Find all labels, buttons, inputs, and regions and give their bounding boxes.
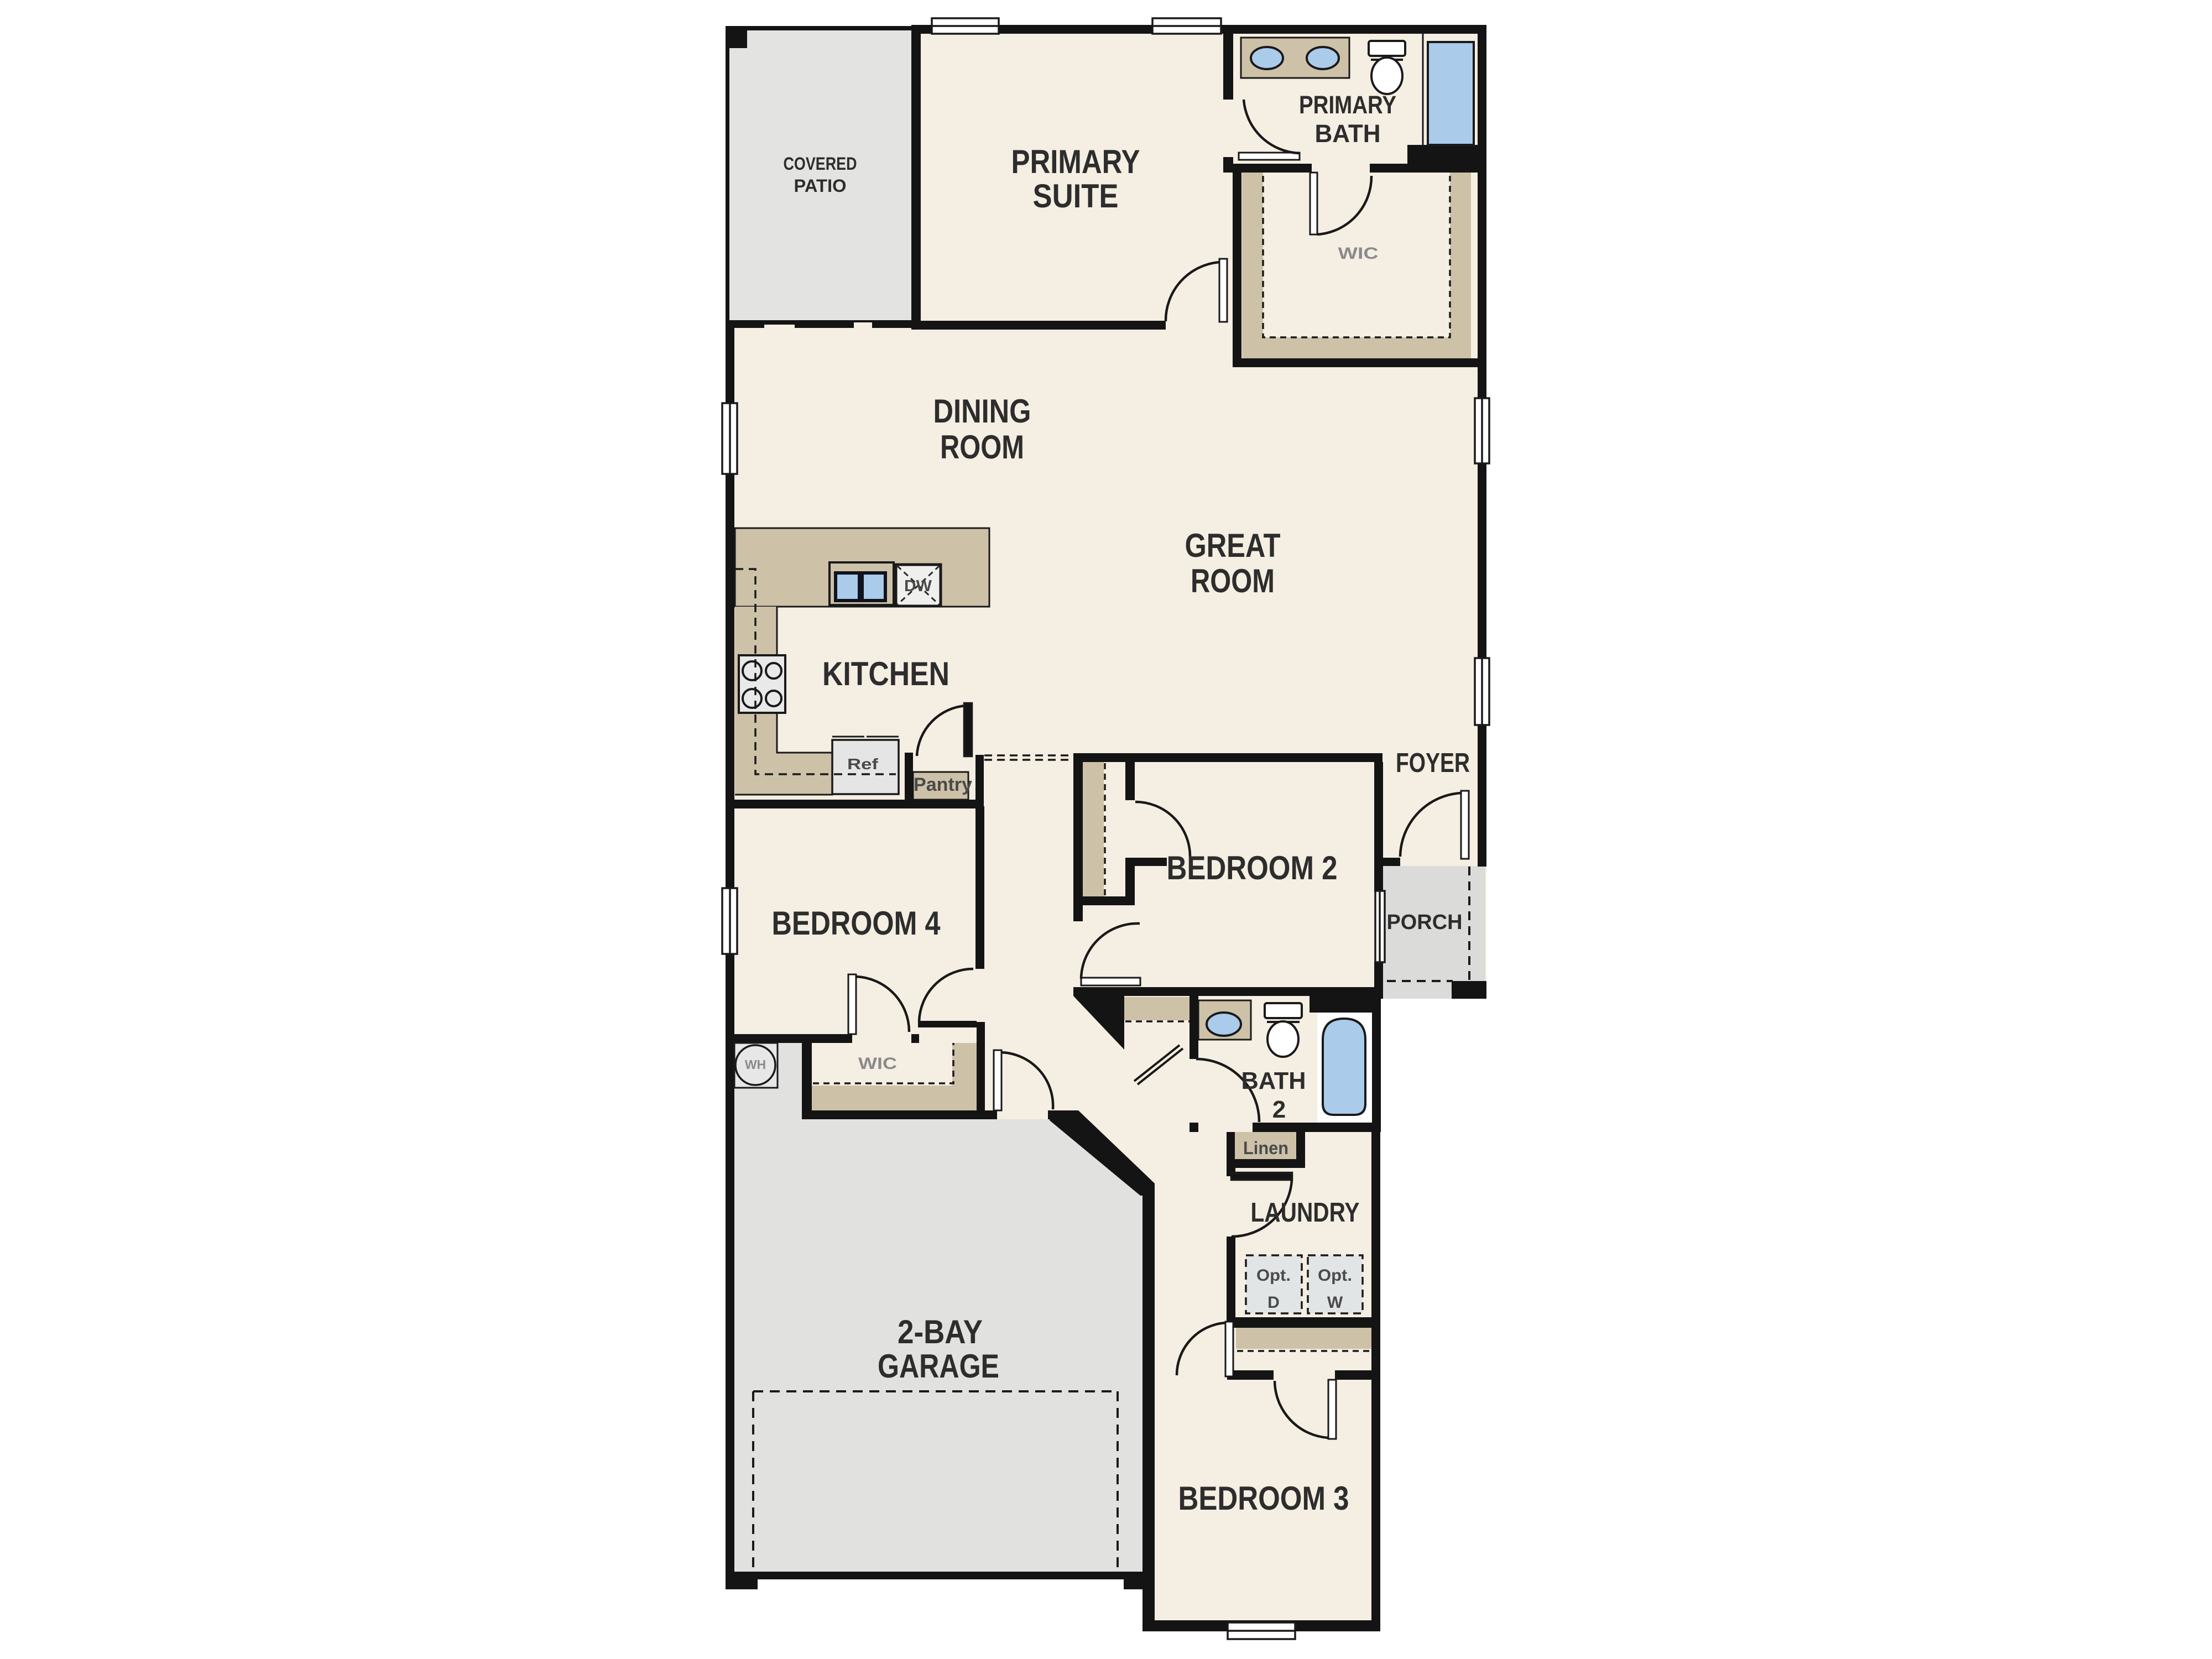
svg-text:BEDROOM 3: BEDROOM 3 <box>1178 1480 1349 1517</box>
svg-text:GREAT: GREAT <box>1185 527 1281 564</box>
svg-text:Opt.: Opt. <box>1256 1266 1291 1285</box>
svg-text:PRIMARY: PRIMARY <box>1011 143 1140 180</box>
svg-text:LAUNDRY: LAUNDRY <box>1251 1198 1360 1228</box>
svg-text:WIC: WIC <box>1338 244 1379 263</box>
svg-text:WIC: WIC <box>858 1055 897 1073</box>
svg-text:BATH: BATH <box>1241 1067 1306 1094</box>
svg-text:D: D <box>1267 1293 1280 1312</box>
svg-text:PRIMARY: PRIMARY <box>1299 91 1396 119</box>
svg-text:PORCH: PORCH <box>1387 911 1463 934</box>
svg-text:BEDROOM 4: BEDROOM 4 <box>772 905 941 942</box>
svg-text:FOYER: FOYER <box>1396 748 1470 778</box>
svg-text:KITCHEN: KITCHEN <box>822 655 950 692</box>
svg-text:DW: DW <box>904 577 932 595</box>
svg-text:Ref: Ref <box>847 755 879 773</box>
svg-text:WH: WH <box>745 1057 766 1072</box>
svg-text:GARAGE: GARAGE <box>878 1348 999 1385</box>
svg-text:COVERED: COVERED <box>784 154 857 174</box>
svg-text:BATH: BATH <box>1315 119 1381 148</box>
svg-text:W: W <box>1327 1293 1343 1312</box>
svg-text:Opt.: Opt. <box>1318 1266 1352 1285</box>
svg-text:ROOM: ROOM <box>1191 562 1275 599</box>
svg-text:PATIO: PATIO <box>794 176 847 196</box>
svg-text:Pantry: Pantry <box>914 774 972 795</box>
svg-text:Linen: Linen <box>1243 1138 1288 1158</box>
svg-text:2-BAY: 2-BAY <box>898 1313 983 1350</box>
svg-text:2: 2 <box>1272 1096 1286 1123</box>
svg-text:SUITE: SUITE <box>1033 178 1119 215</box>
svg-text:BEDROOM 2: BEDROOM 2 <box>1167 849 1338 886</box>
svg-text:ROOM: ROOM <box>940 429 1024 466</box>
svg-text:DINING: DINING <box>933 393 1031 430</box>
